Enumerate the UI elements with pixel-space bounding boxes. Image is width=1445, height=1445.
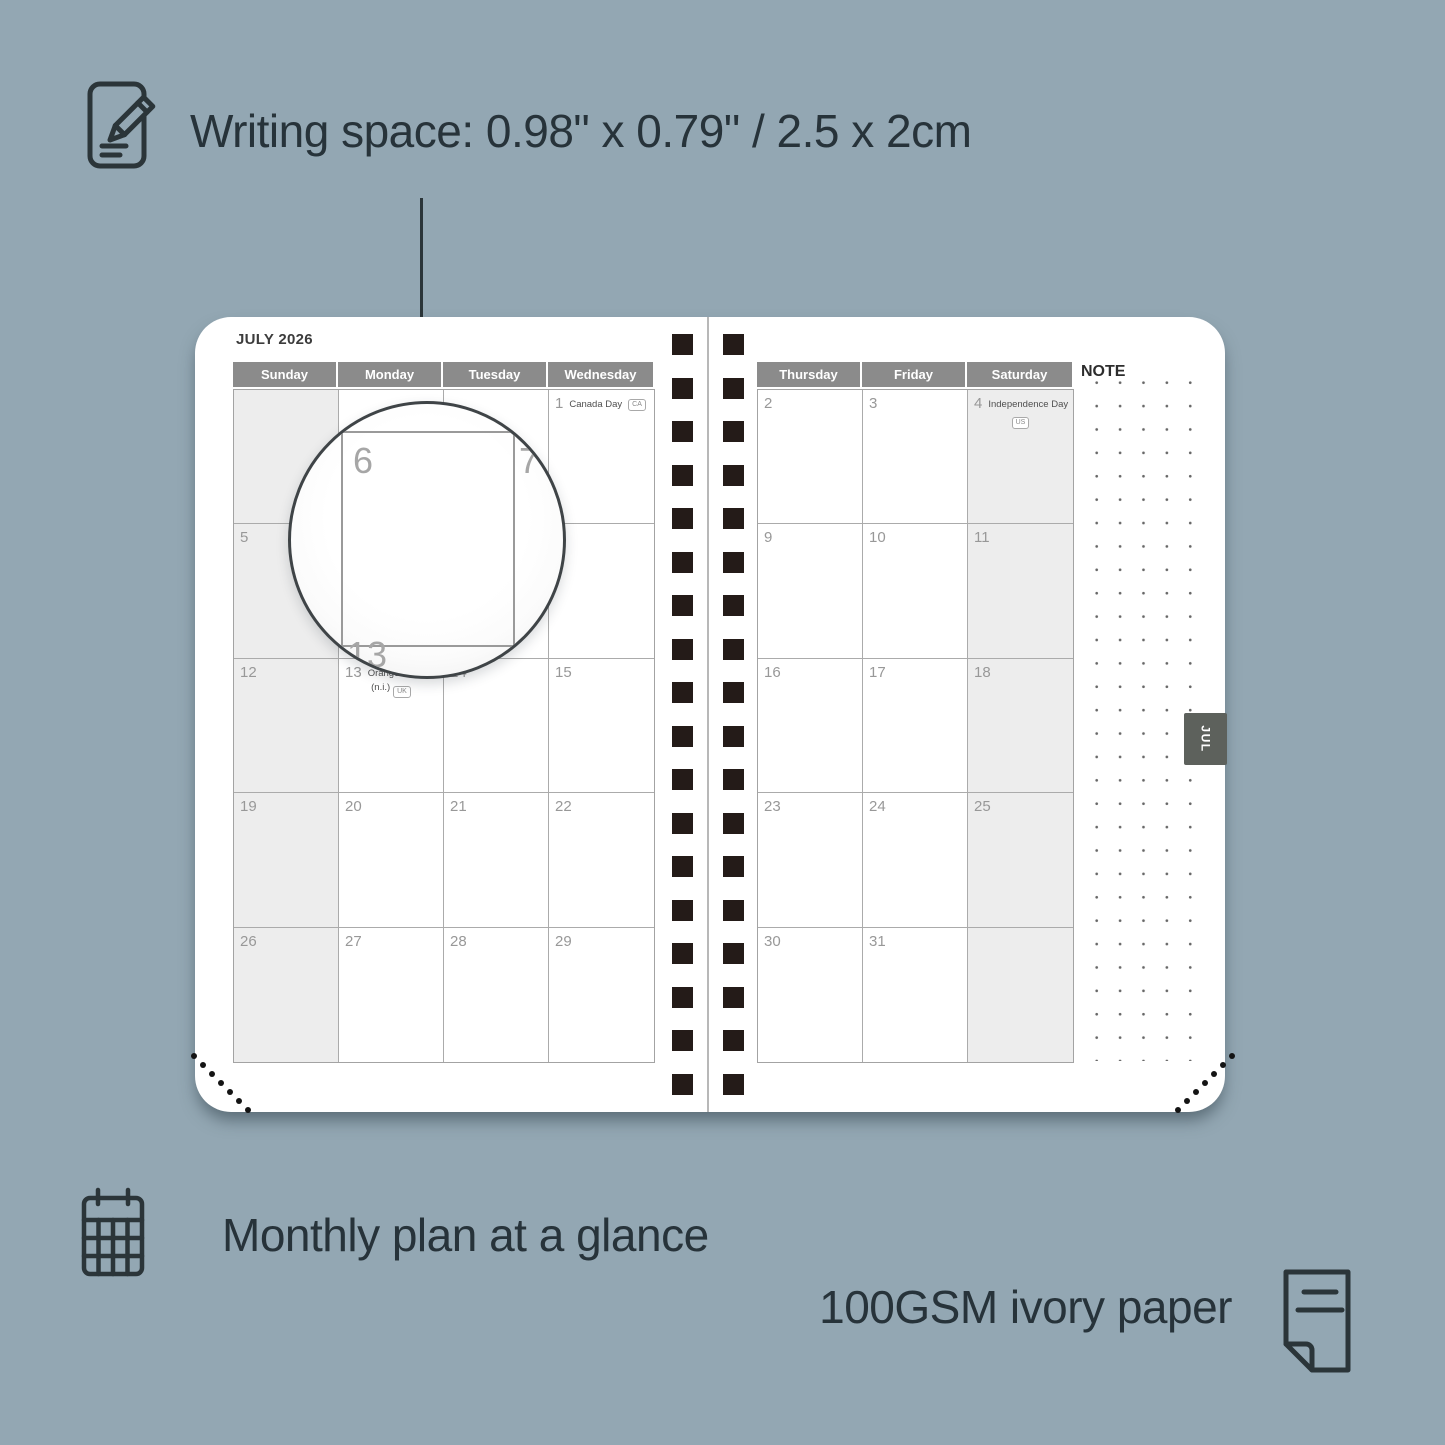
day-number: 17: [869, 664, 886, 681]
day-cell: 27: [339, 928, 444, 1062]
perforation-dots-right: [1176, 1050, 1238, 1112]
day-cell: 25: [968, 793, 1073, 927]
day-number: 4: [974, 395, 982, 412]
day-number: 28: [450, 933, 467, 950]
day-number: 19: [240, 798, 257, 815]
day-cell: 15: [549, 659, 654, 793]
day-cell-independence-day: 4 Independence Day US: [968, 390, 1073, 524]
day-cell: 31: [863, 928, 968, 1062]
day-cell: 28: [444, 928, 549, 1062]
day-number: 15: [555, 664, 572, 681]
day-number: 20: [345, 798, 362, 815]
month-tab-jul: JUL: [1184, 713, 1227, 765]
day-cell: 17: [863, 659, 968, 793]
monthly-plan-headline: Monthly plan at a glance: [222, 1208, 709, 1262]
day-cell: 30: [758, 928, 863, 1062]
day-cell: 24: [863, 793, 968, 927]
month-title: JULY 2026: [236, 331, 313, 348]
country-badge: US: [1012, 417, 1030, 429]
weekday-header: Monday: [338, 362, 443, 387]
day-cell: [968, 928, 1073, 1062]
page-fold-line: [707, 317, 709, 1112]
weekday-header: Wednesday: [548, 362, 653, 387]
calendar-grid-right: 2 3 4 Independence Day US 9 10 11 16 17 …: [757, 389, 1074, 1063]
day-cell: 9: [758, 524, 863, 658]
perforation-dots-left: [188, 1050, 250, 1112]
day-number: 1: [555, 395, 563, 412]
calendar-right-page: Thursday Friday Saturday 2 3 4 Independe…: [757, 362, 1074, 1063]
day-number: 30: [764, 933, 781, 950]
day-number: 29: [555, 933, 572, 950]
day-number: 18: [974, 664, 991, 681]
day-number: 10: [869, 529, 886, 546]
calendar-grid-icon: [80, 1186, 146, 1278]
magnified-adjacent-day-number: 7: [519, 440, 539, 482]
writing-space-headline: Writing space: 0.98" x 0.79" / 2.5 x 2cm: [190, 104, 971, 158]
day-cell: 21: [444, 793, 549, 927]
country-badge: UK: [393, 686, 411, 698]
day-cell: 14: [444, 659, 549, 793]
weekday-header: Sunday: [233, 362, 338, 387]
note-dot-grid: [1079, 367, 1201, 1061]
day-cell: 3: [863, 390, 968, 524]
day-number: 26: [240, 933, 257, 950]
paper-headline: 100GSM ivory paper: [819, 1280, 1232, 1334]
day-number: 3: [869, 395, 877, 412]
day-cell: 26: [234, 928, 339, 1062]
day-number: 5: [240, 529, 248, 546]
day-number: 21: [450, 798, 467, 815]
day-cell: 19: [234, 793, 339, 927]
month-tab-label: JUL: [1198, 725, 1212, 752]
weekday-header: Friday: [862, 362, 967, 387]
product-image-canvas: Writing space: 0.98" x 0.79" / 2.5 x 2cm…: [0, 0, 1445, 1445]
day-cell: 23: [758, 793, 863, 927]
weekday-header-row: Thursday Friday Saturday: [757, 362, 1074, 387]
spiral-binding-left-column: [672, 317, 693, 1112]
spiral-binding-right-column: [723, 317, 744, 1112]
day-number: 25: [974, 798, 991, 815]
magnified-day-number: 6: [353, 440, 373, 482]
day-cell: 16: [758, 659, 863, 793]
magnified-below-day-number: 13: [347, 634, 387, 676]
paper-sheet-icon: [1278, 1266, 1356, 1378]
day-cell: 20: [339, 793, 444, 927]
day-number: 27: [345, 933, 362, 950]
day-number: 31: [869, 933, 886, 950]
day-number: 2: [764, 395, 772, 412]
holiday-name: Canada Day: [569, 399, 622, 410]
day-cell: 10: [863, 524, 968, 658]
day-cell: 29: [549, 928, 654, 1062]
day-number: 9: [764, 529, 772, 546]
day-cell: 22: [549, 793, 654, 927]
day-cell: 11: [968, 524, 1073, 658]
holiday-name: Independence Day: [988, 399, 1068, 410]
country-badge: CA: [628, 399, 646, 411]
day-cell-canada-day: 1 Canada Day CA: [549, 390, 654, 524]
weekday-header-row: Sunday Monday Tuesday Wednesday: [233, 362, 655, 387]
day-cell: 2: [758, 390, 863, 524]
note-label: NOTE: [1081, 363, 1133, 381]
day-number: 11: [974, 529, 990, 546]
weekday-header: Tuesday: [443, 362, 548, 387]
day-number: 16: [764, 664, 781, 681]
notepad-pencil-icon: [84, 68, 178, 172]
day-number: 12: [240, 664, 257, 681]
day-number: 24: [869, 798, 886, 815]
magnifier-lens: 6 7 13: [288, 401, 566, 679]
day-cell: 12: [234, 659, 339, 793]
weekday-header: Thursday: [757, 362, 862, 387]
holiday-name-line2: (n.i.): [371, 682, 390, 698]
day-cell: 18: [968, 659, 1073, 793]
day-number: 23: [764, 798, 781, 815]
day-number: 22: [555, 798, 572, 815]
weekday-header: Saturday: [967, 362, 1072, 387]
